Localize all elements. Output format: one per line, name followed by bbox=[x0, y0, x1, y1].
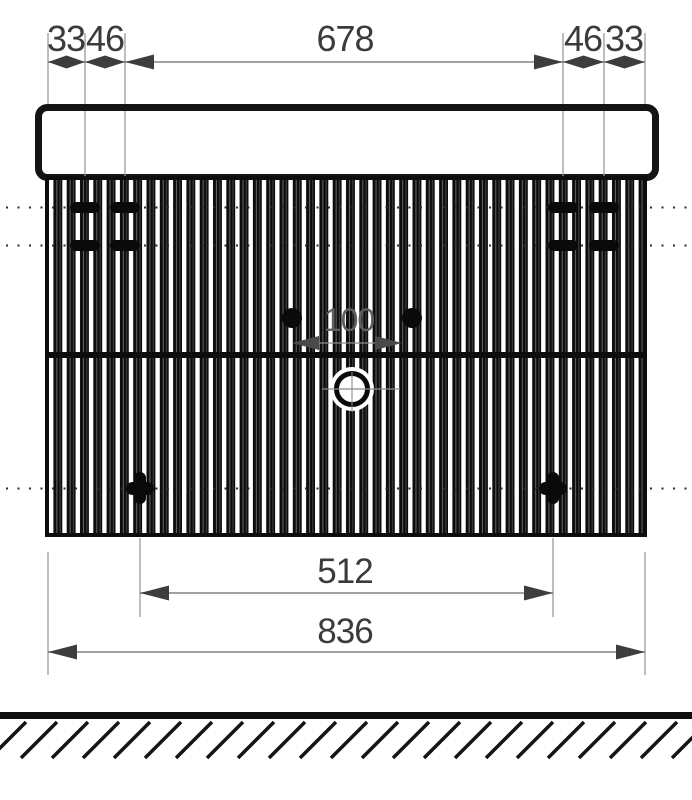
dimension-arrow bbox=[616, 645, 645, 660]
technical-drawing: 33 46 678 46 33 100 bbox=[0, 0, 692, 800]
dim-label-top-right-offset: 46 bbox=[564, 18, 602, 59]
bracket-pill bbox=[548, 202, 578, 213]
dim-label-overall-width: 836 bbox=[317, 612, 372, 651]
dim-label-mount-spacing: 512 bbox=[317, 552, 372, 591]
bracket-pill bbox=[589, 202, 619, 213]
dimension-arrow bbox=[140, 586, 169, 601]
faucet-hole-left bbox=[282, 308, 302, 328]
bracket-pill bbox=[70, 202, 100, 213]
floor-hatch bbox=[0, 722, 692, 758]
faucet-hole-right bbox=[402, 308, 422, 328]
dim-label-faucet-spacing: 100 bbox=[324, 302, 375, 338]
bracket-pill bbox=[70, 240, 100, 251]
bracket-pill bbox=[548, 240, 578, 251]
dim-label-top-left-offset: 46 bbox=[86, 18, 124, 59]
dimension-arrow bbox=[524, 586, 553, 601]
dim-label-top-left-edge: 33 bbox=[47, 18, 85, 59]
floor-group bbox=[0, 712, 692, 758]
dimension-arrow bbox=[48, 645, 77, 660]
mount-clover-horizontal bbox=[126, 482, 154, 495]
dimension-arrow bbox=[534, 55, 563, 70]
bracket-pill bbox=[110, 202, 140, 213]
dim-label-top-right-edge: 33 bbox=[605, 18, 643, 59]
drawing-canvas: 33 46 678 46 33 100 bbox=[0, 0, 692, 800]
bracket-pill bbox=[589, 240, 619, 251]
mount-clover-horizontal bbox=[539, 482, 567, 495]
floor-line bbox=[0, 712, 692, 719]
drawer-divider bbox=[47, 352, 645, 358]
dimension-arrow bbox=[125, 55, 154, 70]
bottom-dimension-group: 512 836 bbox=[48, 538, 645, 675]
bracket-pill bbox=[110, 240, 140, 251]
dim-label-top-span: 678 bbox=[316, 18, 373, 59]
